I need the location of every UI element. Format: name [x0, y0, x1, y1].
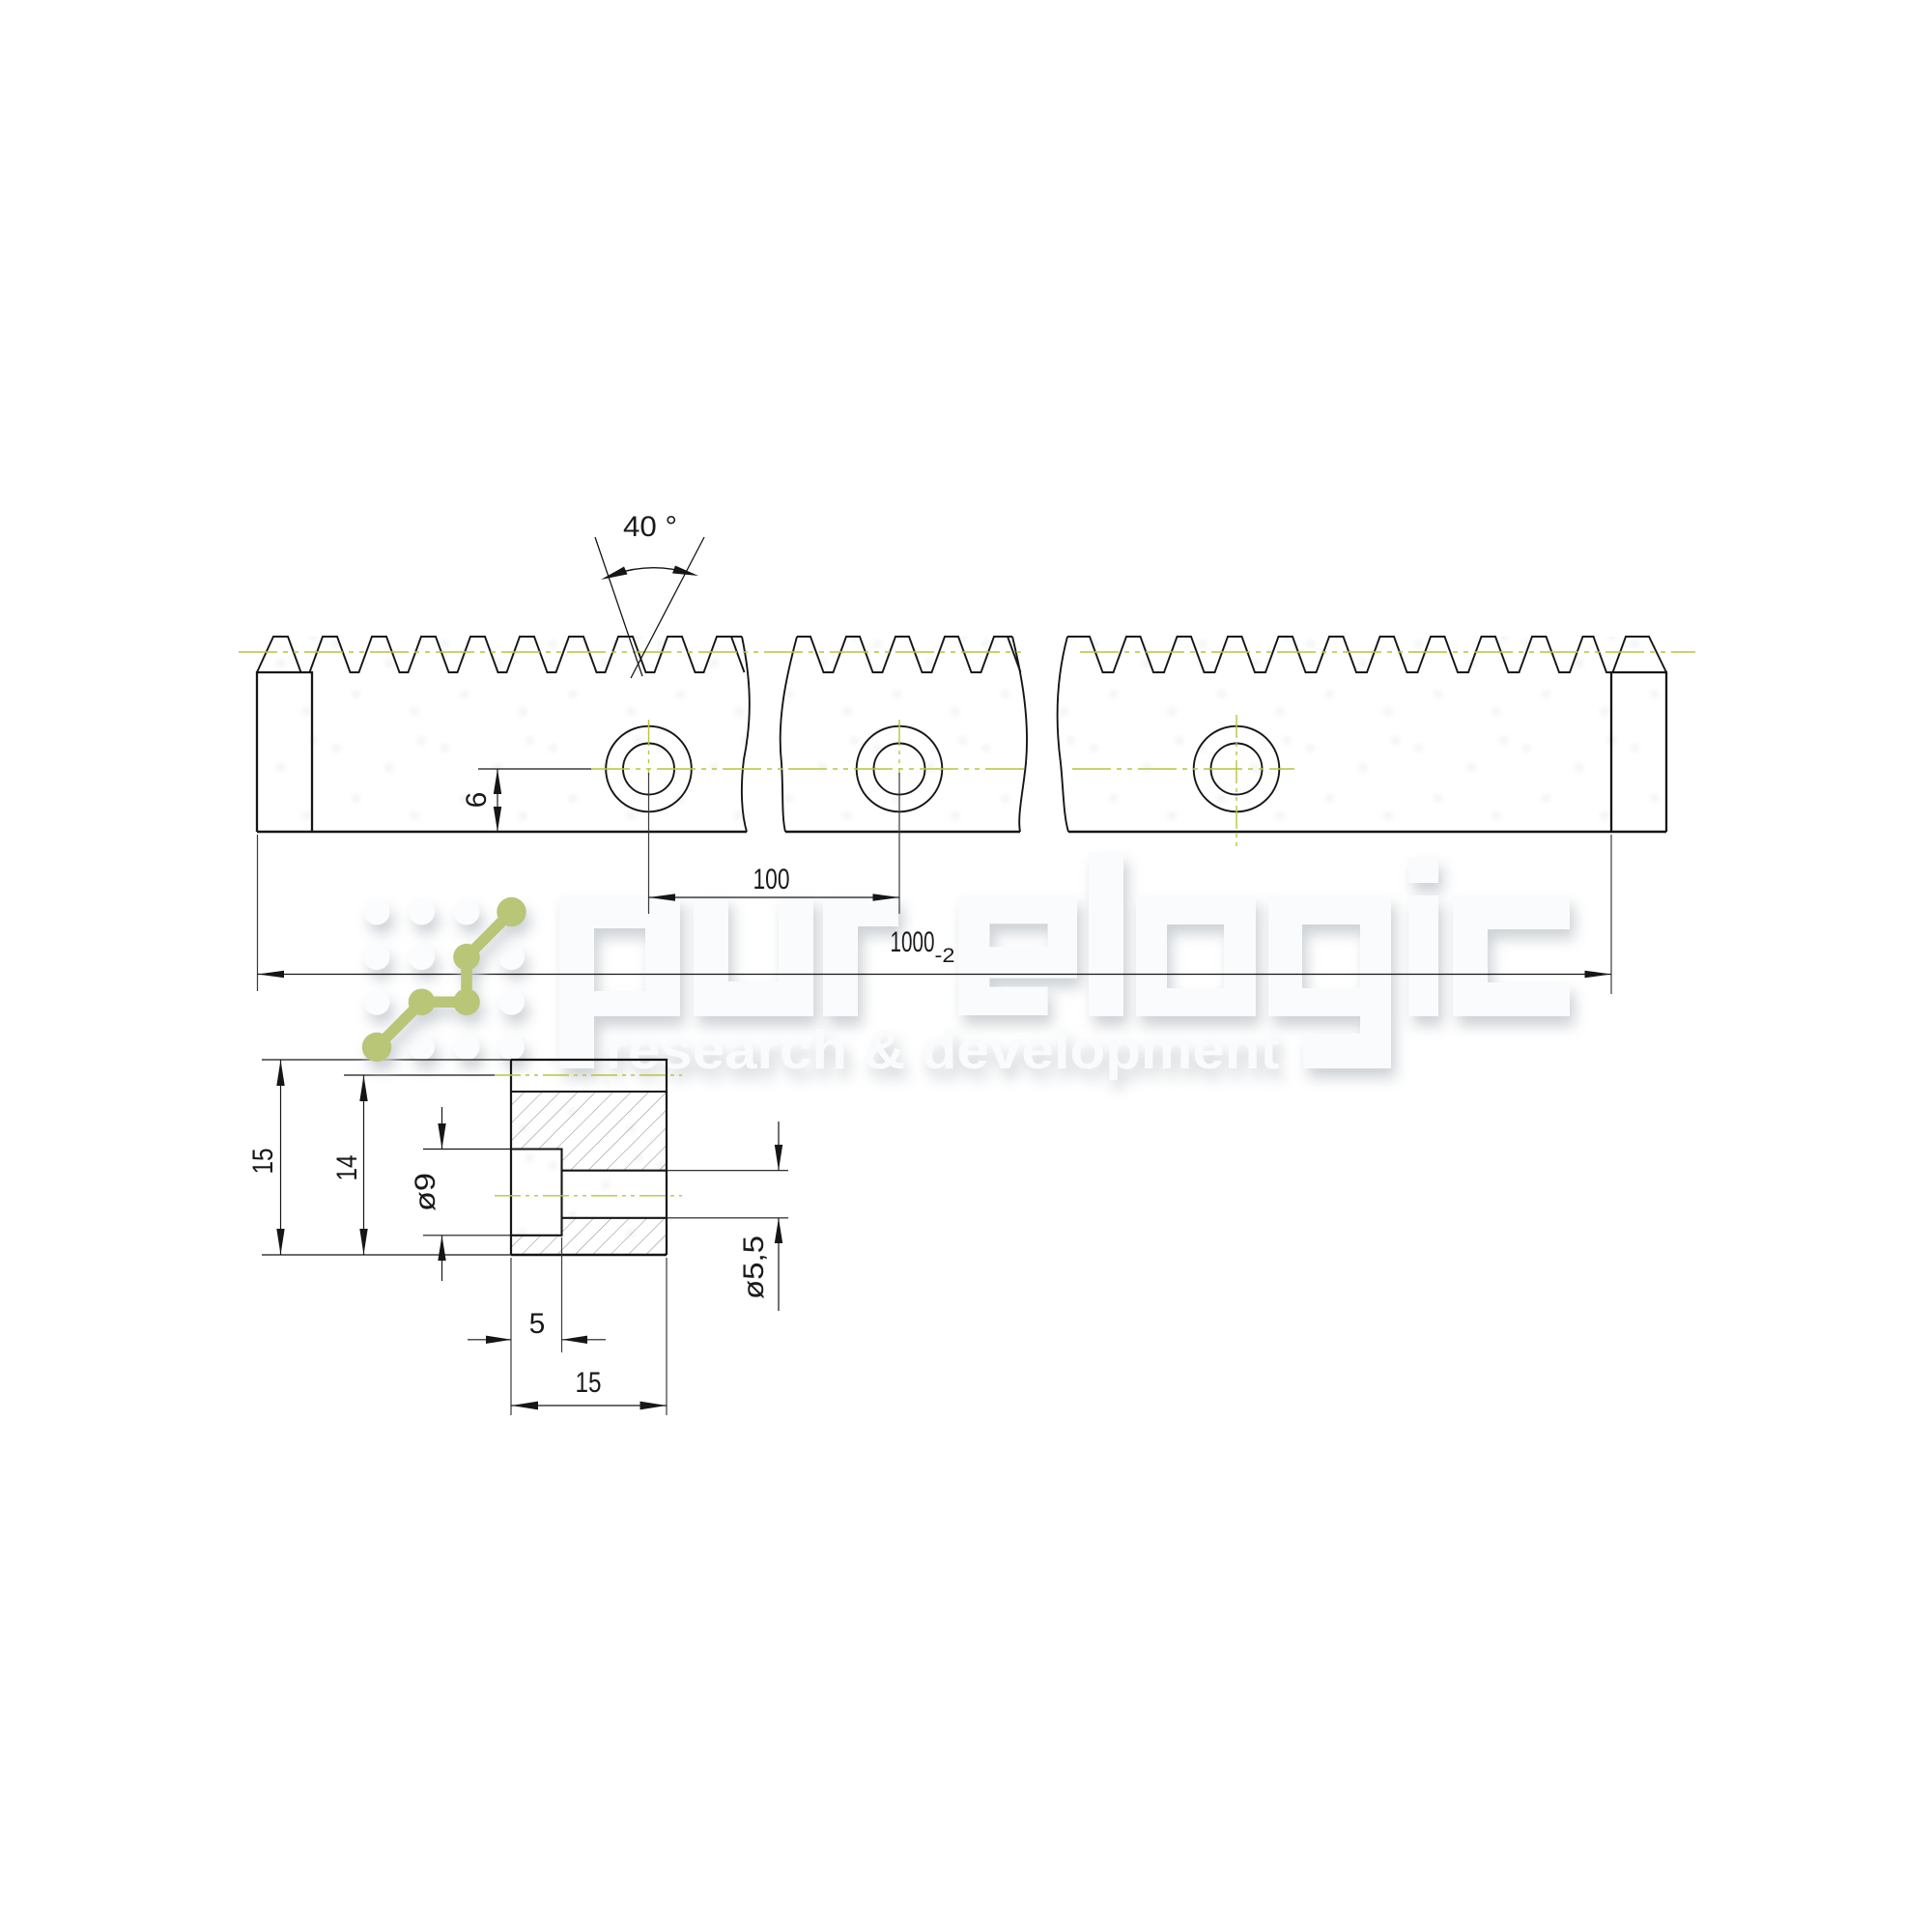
svg-text:-2: -2 [935, 945, 955, 967]
svg-text:15: 15 [576, 1367, 602, 1399]
svg-text:ø9: ø9 [410, 1173, 441, 1211]
svg-text:6: 6 [461, 792, 493, 809]
svg-text:1000: 1000 [891, 926, 935, 958]
svg-text:100: 100 [753, 864, 790, 895]
svg-text:ø5,5: ø5,5 [738, 1236, 770, 1299]
svg-text:research & development: research & development [606, 1019, 1280, 1081]
svg-text:5: 5 [529, 1308, 546, 1340]
svg-text:14: 14 [331, 1155, 363, 1181]
svg-text:40 °: 40 ° [623, 511, 677, 543]
svg-text:15: 15 [247, 1149, 279, 1175]
